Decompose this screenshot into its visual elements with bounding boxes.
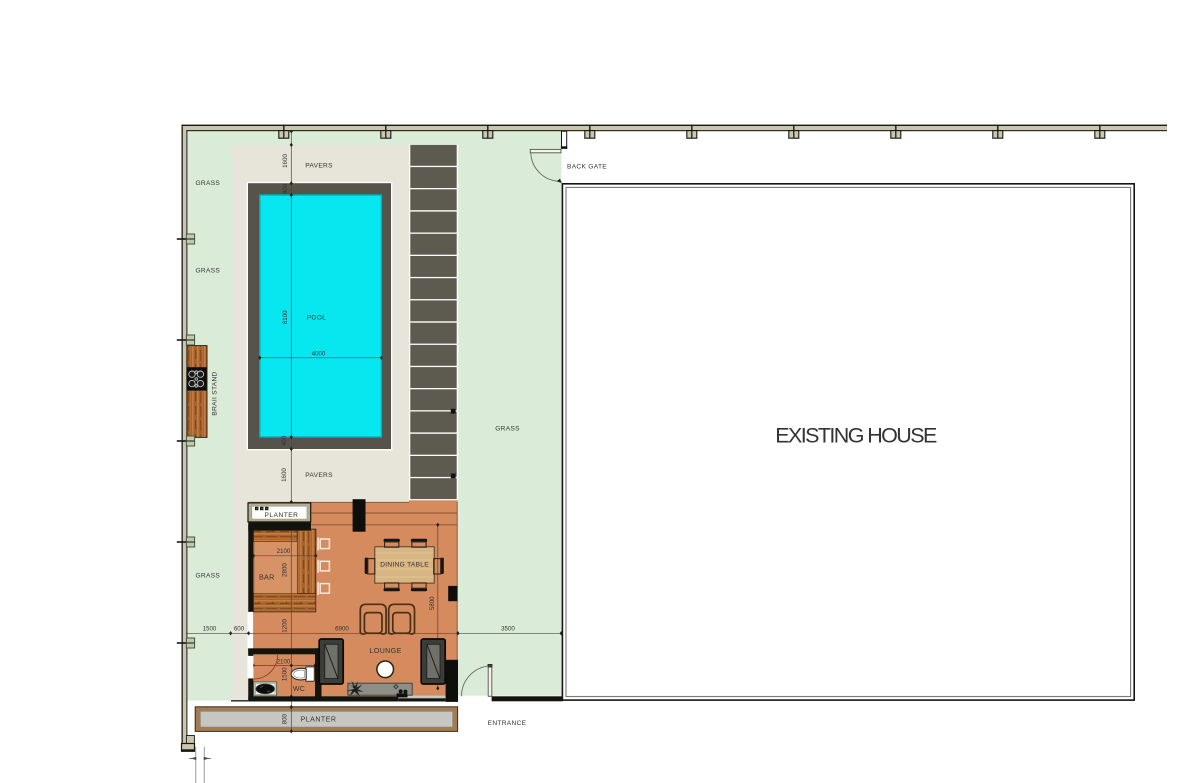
svg-text:ENTRANCE: ENTRANCE — [488, 720, 527, 727]
svg-text:600: 600 — [234, 626, 245, 633]
svg-text:DINING TABLE: DINING TABLE — [380, 561, 429, 568]
svg-text:3500: 3500 — [501, 625, 515, 632]
svg-text:400: 400 — [282, 183, 289, 194]
svg-text:5800: 5800 — [429, 596, 436, 610]
svg-text:PAVERS: PAVERS — [305, 472, 333, 479]
svg-text:GRASS: GRASS — [495, 426, 520, 433]
svg-text:GRASS: GRASS — [196, 572, 221, 579]
svg-text:2100: 2100 — [277, 548, 291, 555]
svg-text:800: 800 — [282, 713, 289, 724]
svg-text:WC: WC — [293, 686, 305, 693]
svg-text:EXISTING HOUSE: EXISTING HOUSE — [775, 424, 937, 448]
svg-text:2100: 2100 — [277, 658, 291, 665]
svg-text:1500: 1500 — [203, 626, 217, 633]
svg-text:6900: 6900 — [335, 625, 349, 632]
svg-text:4000: 4000 — [312, 350, 326, 357]
svg-text:2800: 2800 — [282, 563, 289, 577]
svg-text:PLANTER: PLANTER — [301, 717, 337, 724]
svg-text:PAVERS: PAVERS — [305, 163, 333, 170]
svg-text:1600: 1600 — [282, 154, 289, 168]
svg-text:1200: 1200 — [282, 618, 289, 632]
svg-text:BRAII STAND: BRAII STAND — [212, 371, 219, 415]
svg-text:8100: 8100 — [282, 310, 289, 324]
svg-text:PLANTER: PLANTER — [265, 512, 299, 519]
svg-text:BACK GATE: BACK GATE — [567, 164, 607, 171]
svg-text:1600: 1600 — [281, 468, 288, 482]
svg-text:GRASS: GRASS — [196, 267, 221, 274]
svg-text:400: 400 — [281, 435, 288, 446]
svg-text:POOL: POOL — [307, 314, 327, 321]
svg-text:LOUNGE: LOUNGE — [369, 646, 401, 655]
svg-text:GRASS: GRASS — [196, 180, 221, 187]
svg-text:BAR: BAR — [259, 572, 275, 581]
svg-text:1500: 1500 — [281, 667, 288, 681]
